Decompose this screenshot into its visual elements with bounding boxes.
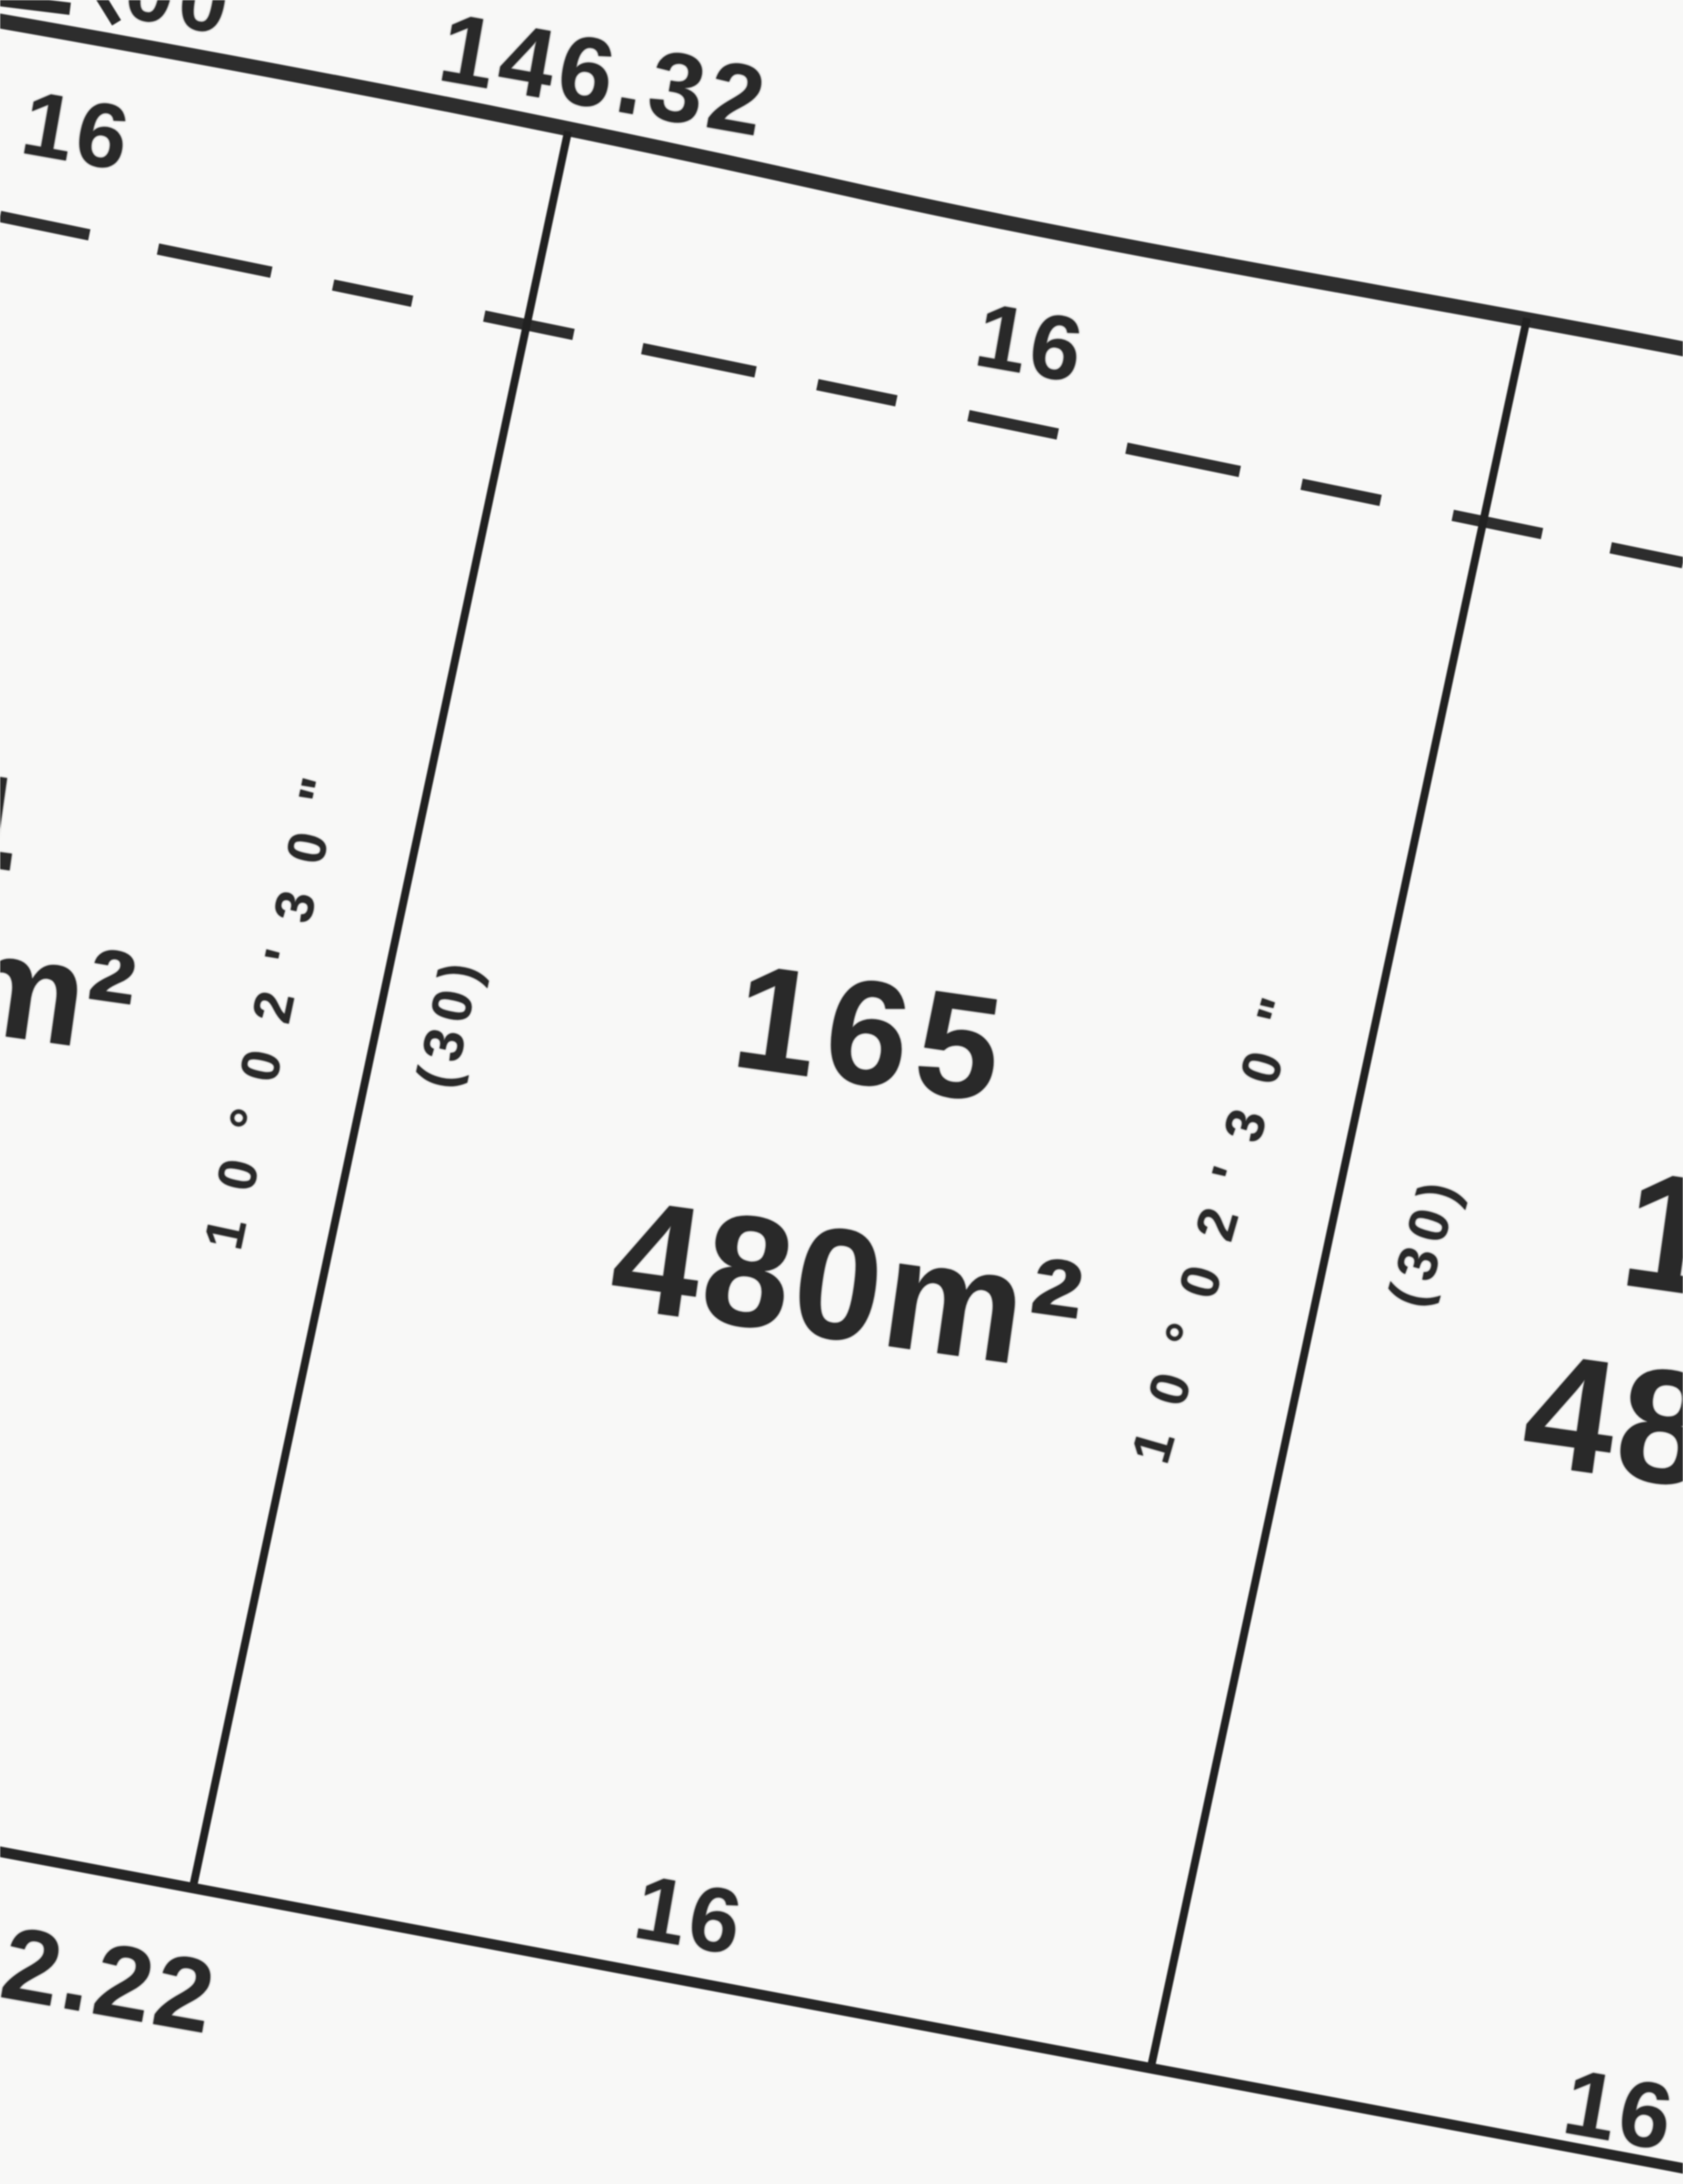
cadastral-plan: 00 146.32 16 16 10°02'30" (30) 165 480m²… xyxy=(0,0,1683,2184)
rear-width-lot165-label: 16 xyxy=(628,1861,751,1970)
rear-width-right-lot-label: 16 xyxy=(1558,2055,1682,2166)
neighbor-right-area-fragment: 48 xyxy=(1515,1329,1683,1515)
top-left-fragment-line xyxy=(0,0,70,9)
frontage-width-left-lot-label: 16 xyxy=(16,77,138,186)
road-boundary-line xyxy=(0,21,1683,349)
neighbor-left-area-fragment: m² xyxy=(0,908,143,1075)
partial-digit-stroke xyxy=(98,0,117,23)
lot-number-label: 165 xyxy=(726,941,1019,1127)
rear-boundary-line xyxy=(0,1850,1683,2170)
frontage-width-lot165-label: 16 xyxy=(969,289,1092,398)
dashed-setback-line xyxy=(0,216,1683,563)
